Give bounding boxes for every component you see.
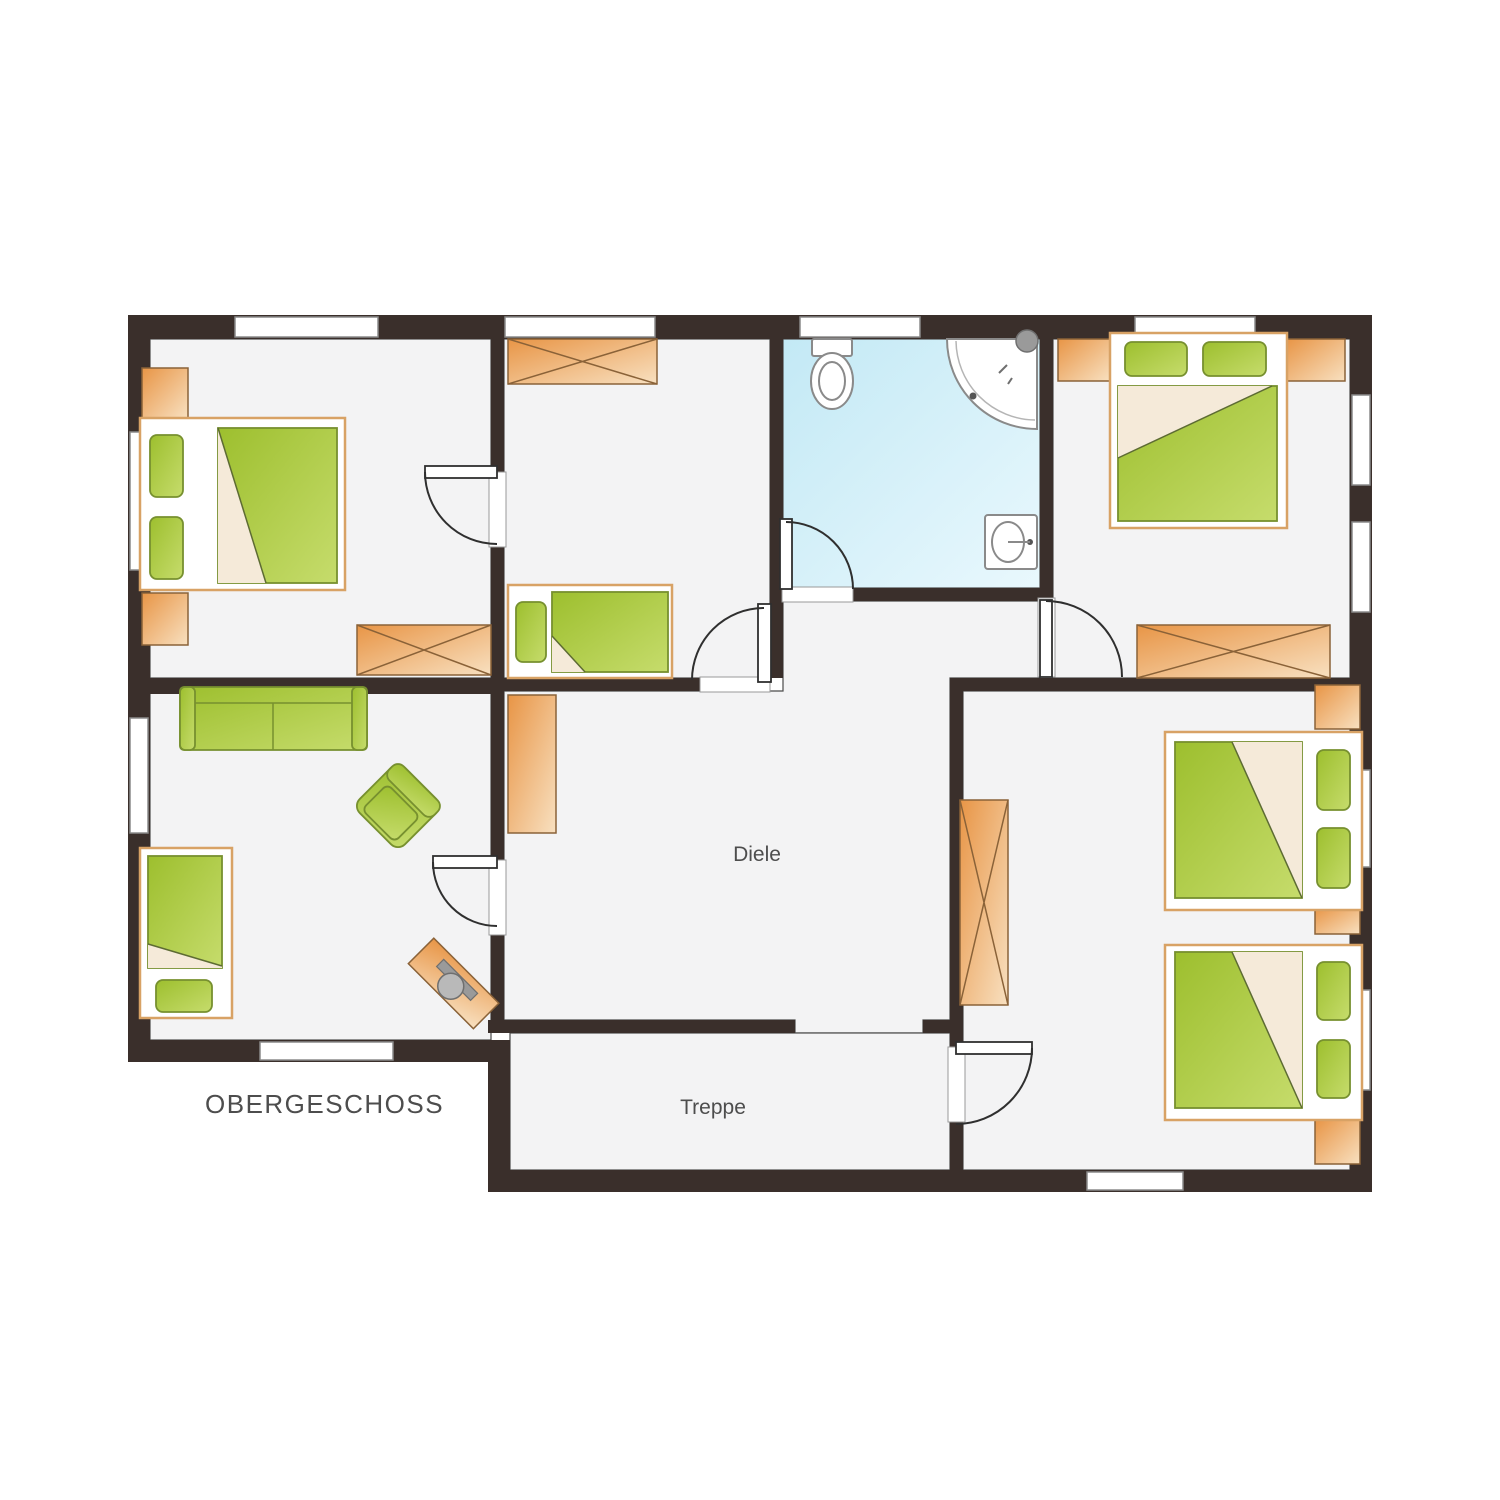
window-top-bathroom: [800, 317, 920, 337]
nightstand: [1315, 908, 1360, 934]
floorplan-drawing: Diele Treppe: [0, 0, 1500, 1500]
wall-int-v5a: [491, 692, 504, 860]
wall-int-v1a: [491, 315, 504, 472]
wall-int-middle-bath: [770, 315, 783, 678]
wall-exterior-staircase-left: [488, 1040, 510, 1192]
wall-exterior-bottom: [488, 1170, 1372, 1192]
hallway-label: Diele: [733, 843, 781, 866]
staircase: Treppe: [680, 1096, 746, 1119]
hall-cabinet: [508, 695, 556, 833]
nightstand: [1315, 685, 1360, 729]
wall-int-bath-bottom-a: [770, 588, 782, 601]
window-right-1: [1352, 395, 1370, 485]
nightstand: [1058, 339, 1110, 381]
shower-head: [1016, 330, 1038, 352]
window-left-2: [130, 718, 148, 833]
wardrobe: [508, 339, 657, 384]
pillow: [150, 435, 183, 497]
wall-int-topright-bottom: [963, 678, 1372, 691]
wardrobe: [1137, 625, 1330, 678]
sofa: [180, 687, 367, 750]
nightstand: [1287, 339, 1345, 381]
wall-int-bottomright-left-b: [950, 1122, 963, 1192]
sink: [985, 515, 1037, 569]
shower-drain: [970, 393, 977, 400]
wall-int-middle-bottom: [504, 678, 700, 691]
dresser: [357, 625, 491, 675]
pillow: [156, 980, 212, 1012]
nightstand: [142, 593, 188, 645]
wall-int-v1b: [491, 547, 504, 678]
sofa-armrest: [352, 687, 367, 750]
window-right-2: [1352, 522, 1370, 612]
stairs-label: Treppe: [680, 1096, 746, 1119]
pillow: [1317, 1040, 1350, 1098]
pillow: [1317, 828, 1350, 888]
pillow: [1125, 342, 1187, 376]
pillow: [1317, 750, 1350, 810]
wall-int-bath-topright: [1040, 315, 1053, 598]
pillow: [1317, 962, 1350, 1020]
nightstand: [1315, 1120, 1360, 1164]
floorplan-page: Diele Treppe: [0, 0, 1500, 1500]
pillow: [150, 517, 183, 579]
wardrobe: [960, 800, 1008, 1005]
toilet: [811, 339, 853, 409]
wall-int-hall-stairs-b: [923, 1020, 963, 1033]
window-bottom-right: [1087, 1172, 1183, 1190]
window-bottom-left: [260, 1042, 393, 1060]
wall-int-bath-bottom-b: [853, 588, 1053, 601]
pillow: [516, 602, 546, 662]
sofa-armrest: [180, 687, 195, 750]
pillow: [1203, 342, 1266, 376]
floor-title: OBERGESCHOSS: [205, 1089, 444, 1119]
wall-int-hall-stairs-a: [488, 1020, 795, 1033]
nightstand: [142, 368, 188, 418]
window-top-2: [505, 317, 655, 337]
window-top-1: [235, 317, 378, 337]
